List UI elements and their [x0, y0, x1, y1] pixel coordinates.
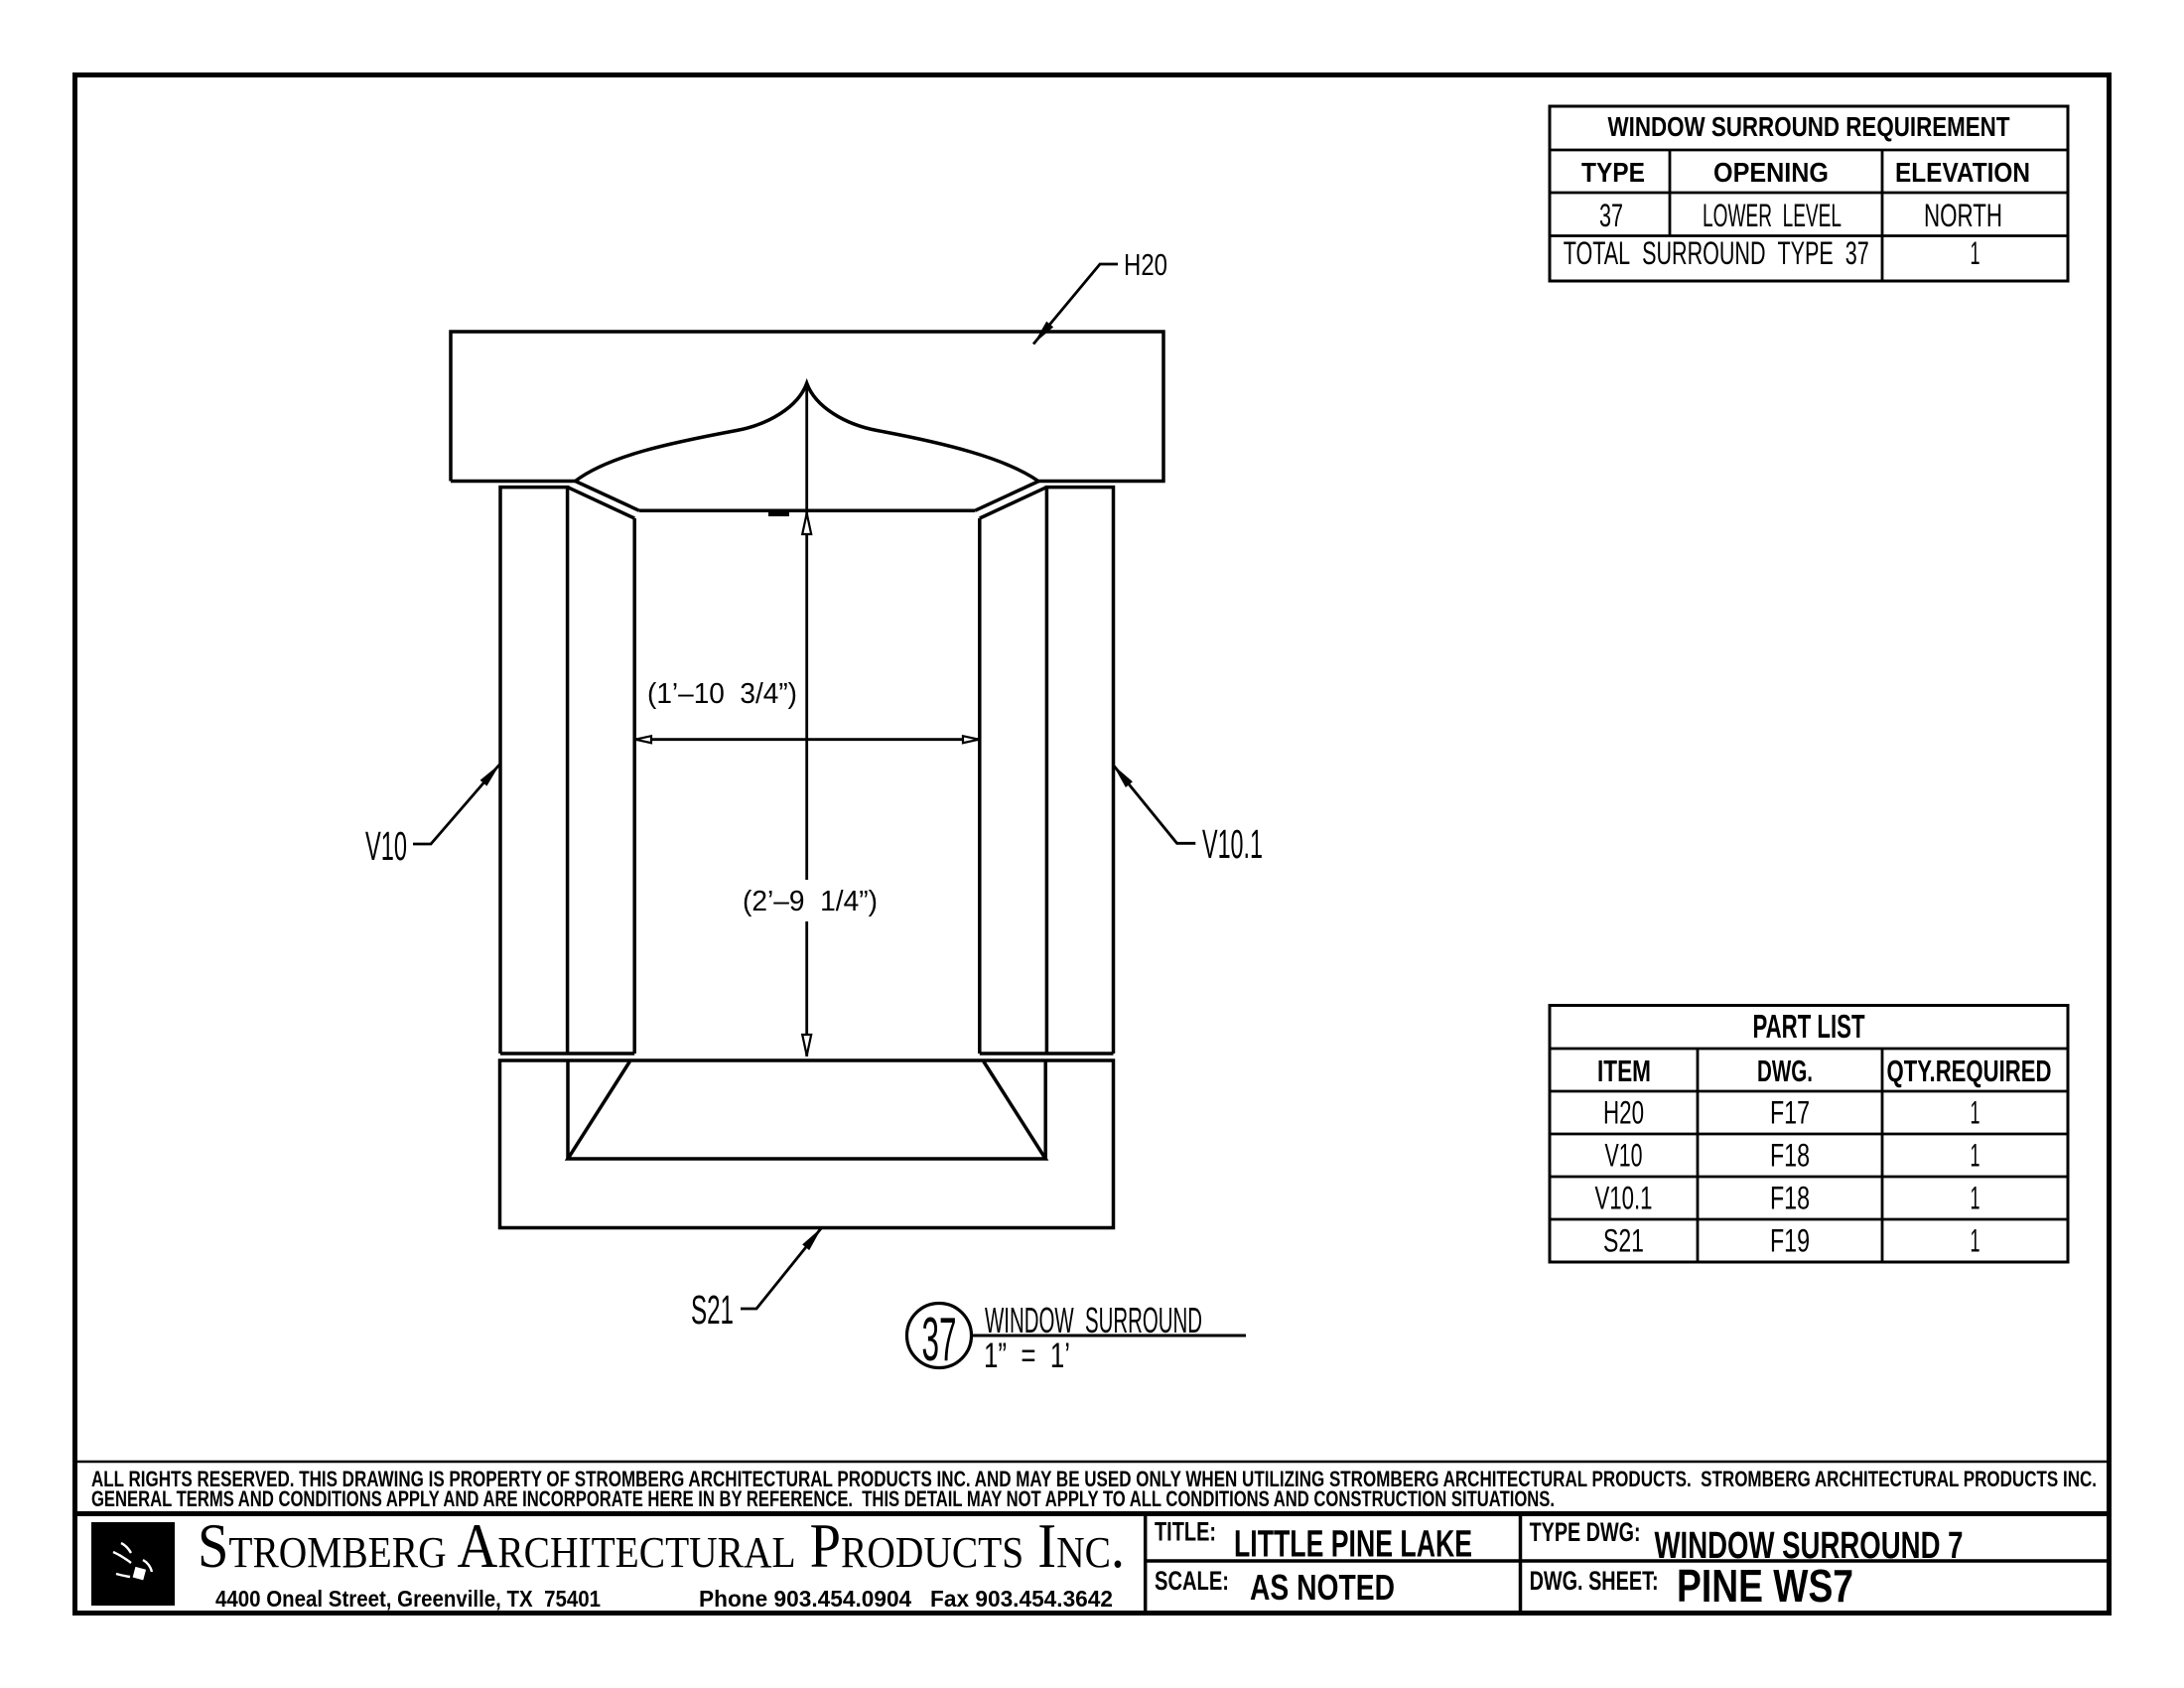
svg-text:NORTH: NORTH — [1924, 198, 2002, 233]
svg-text:DWG.: DWG. — [1757, 1054, 1813, 1088]
svg-text:ITEM: ITEM — [1597, 1054, 1651, 1088]
svg-text:TYPE: TYPE — [1581, 157, 1645, 188]
svg-text:PINE WS7: PINE WS7 — [1677, 1560, 1853, 1612]
svg-text:1: 1 — [1971, 235, 1980, 271]
svg-text:DWG. SHEET:: DWG. SHEET: — [1530, 1566, 1659, 1596]
svg-text:F18: F18 — [1770, 1138, 1810, 1174]
svg-text:AS NOTED: AS NOTED — [1250, 1567, 1395, 1608]
svg-text:V10: V10 — [1605, 1138, 1643, 1174]
svg-text:Phone 903.454.0904 Fax 903.4: Phone 903.454.0904 Fax 903.454.3642 — [699, 1586, 1113, 1612]
svg-text:TYPE DWG:: TYPE DWG: — [1530, 1517, 1641, 1547]
svg-text:4400 Oneal Street, Greenville,: 4400 Oneal Street, Greenville, TX 75401 — [215, 1586, 601, 1612]
svg-text:1” = 1’: 1” = 1’ — [984, 1336, 1070, 1375]
svg-text:Stromberg Architectural Produc: Stromberg Architectural Products Inc. — [198, 1511, 1125, 1581]
svg-text:TOTAL SURROUND TYPE 37: TOTAL SURROUND TYPE 37 — [1564, 235, 1869, 271]
svg-text:QTY.REQUIRED: QTY.REQUIRED — [1887, 1054, 2052, 1088]
svg-text:(2’–9 1/4”): (2’–9 1/4”) — [743, 886, 878, 917]
svg-text:V10.1: V10.1 — [1202, 821, 1263, 867]
svg-text:WINDOW SURROUND: WINDOW SURROUND — [985, 1300, 1202, 1340]
svg-text:V10.1: V10.1 — [1595, 1181, 1653, 1216]
svg-text:F18: F18 — [1770, 1181, 1810, 1216]
svg-text:1: 1 — [1971, 1223, 1980, 1259]
svg-text:F17: F17 — [1770, 1095, 1810, 1131]
svg-text:LITTLE PINE LAKE: LITTLE PINE LAKE — [1234, 1524, 1472, 1566]
svg-text:1: 1 — [1971, 1138, 1980, 1174]
svg-text:H20: H20 — [1603, 1095, 1644, 1131]
svg-text:H20: H20 — [1124, 247, 1167, 282]
svg-text:WINDOW SURROUND REQUIREMENT: WINDOW SURROUND REQUIREMENT — [1608, 111, 2010, 142]
svg-text:S21: S21 — [691, 1287, 734, 1333]
svg-text:OPENING: OPENING — [1713, 157, 1829, 188]
svg-text:V10: V10 — [365, 823, 407, 869]
svg-text:TITLE:: TITLE: — [1155, 1517, 1216, 1547]
svg-text:F19: F19 — [1770, 1223, 1810, 1259]
svg-text:(1’–10 3/4”): (1’–10 3/4”) — [647, 678, 797, 710]
svg-text:SCALE:: SCALE: — [1155, 1566, 1229, 1596]
svg-text:1: 1 — [1971, 1181, 1980, 1216]
svg-text:PART LIST: PART LIST — [1753, 1008, 1865, 1045]
svg-text:GENERAL TERMS AND CONDITIONS A: GENERAL TERMS AND CONDITIONS APPLY AND A… — [91, 1486, 1555, 1511]
svg-text:37: 37 — [1599, 198, 1623, 233]
svg-text:LOWER LEVEL: LOWER LEVEL — [1703, 198, 1842, 233]
svg-text:1: 1 — [1971, 1095, 1980, 1131]
svg-text:ELEVATION: ELEVATION — [1895, 157, 2030, 188]
svg-text:37: 37 — [922, 1306, 957, 1374]
svg-text:S21: S21 — [1603, 1223, 1644, 1259]
